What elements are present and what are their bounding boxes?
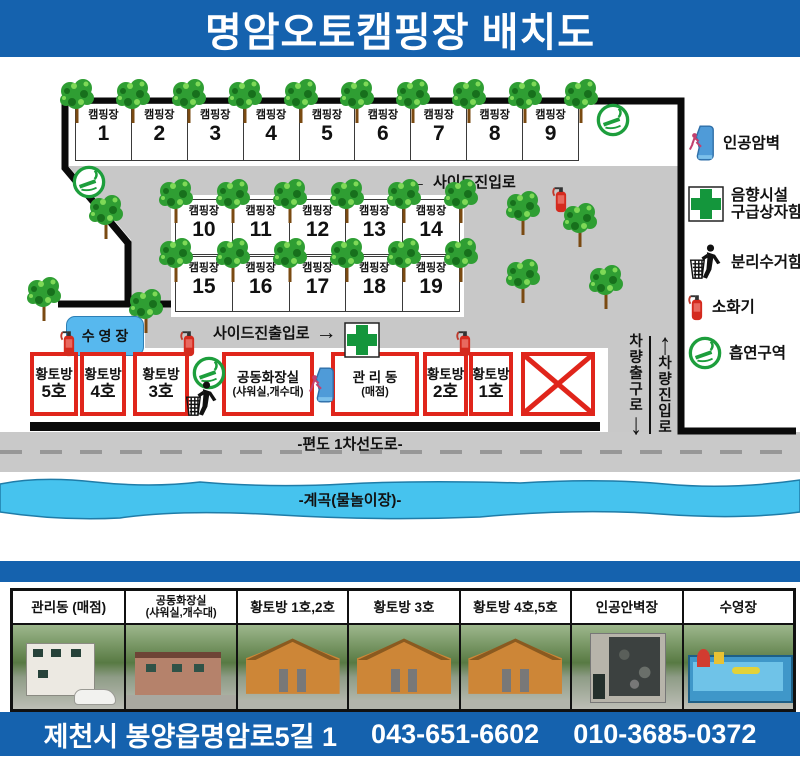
right-arrow-icon: → (316, 325, 337, 340)
camp-site-3: 캠핑장3 (187, 103, 244, 161)
photo-header: 인공안벽장 (572, 591, 681, 625)
camp-site-6: 캠핑장6 (354, 103, 411, 161)
main-road-label: -편도 1차선도로- (245, 433, 455, 454)
camp-site-13: 캠핑장13 (345, 199, 403, 255)
page-title: 명암오토캠핑장 배치도 (205, 0, 595, 58)
first-aid-icon (688, 186, 724, 222)
photo-header: 황토방 1호,2호 (238, 591, 347, 625)
fire-extinguisher-icon (60, 328, 77, 363)
crossed-out-lot (521, 352, 595, 416)
camp-row-1-9: 캠핑장1캠핑장2캠핑장3캠핑장4캠핑장5캠핑장6캠핑장7캠핑장8캠핑장9 (75, 103, 579, 161)
photo-header: 황토방 3호 (349, 591, 458, 625)
camp-site-15: 캠핑장15 (175, 256, 233, 312)
first-aid-icon (344, 322, 380, 363)
climbing-wall-icon (308, 366, 336, 409)
camp-site-17: 캠핑장17 (289, 256, 347, 312)
address: 제천시 봉양읍명암로5길 1 (44, 715, 337, 754)
hwangto-room-photo (238, 625, 347, 709)
camp-site-9: 캠핑장9 (522, 103, 579, 161)
photo-cell-황토방1호2호: 황토방 1호,2호 (236, 591, 347, 709)
camp-site-8: 캠핑장8 (466, 103, 523, 161)
left-arrow-icon: ← (406, 174, 427, 189)
vehicle-road-divider (649, 336, 651, 434)
fire-extinguisher-icon (552, 184, 569, 219)
tree-icon (505, 190, 541, 236)
building-황토방-1호: 황토방1호 (469, 352, 513, 416)
photo-cell-황토방4호5호: 황토방 4호,5호 (459, 591, 570, 709)
camp-row-15-19: 캠핑장15캠핑장16캠핑장17캠핑장18캠핑장19 (175, 256, 460, 312)
photo-header: 공동화장실(샤워실,개수대) (126, 591, 235, 625)
camp-row-10-14: 캠핑장10캠핑장11캠핑장12캠핑장13캠핑장14 (175, 199, 460, 255)
vehicle-exit-label: 차량출구로↓ (627, 334, 645, 436)
smoking-area-icon (688, 336, 722, 370)
legend-label: 분리수거함 (731, 254, 800, 271)
photo-header: 황토방 4호,5호 (461, 591, 570, 625)
camp-site-14: 캠핑장14 (402, 199, 460, 255)
phone-2: 010-3685-0372 (573, 719, 756, 750)
campground-layout-poster: 명암오토캠핑장 배치도 캠핑장1캠핑장2캠핑장3캠핑장4캠핑장5캠핑장6캠핑장7… (0, 0, 800, 761)
legend-item-recycle: 분리수거함 (688, 243, 800, 281)
down-arrow-icon: ↓ (627, 411, 645, 439)
legend-item-first-aid: 음향시설구급상자함 (688, 186, 800, 222)
side-exit-label: 사이드진출입로 → (213, 322, 337, 343)
tree-icon (505, 258, 541, 304)
up-arrow-icon: ↑ (656, 331, 674, 359)
fire-extinguisher-icon (688, 292, 705, 322)
tree-icon (26, 276, 62, 322)
fire-extinguisher-icon (180, 328, 197, 363)
side-entry-label: ← 사이드진입로 (406, 171, 516, 192)
camp-site-4: 캠핑장4 (243, 103, 300, 161)
vehicle-entry-label: ↑차량진입로 (656, 334, 674, 436)
photo-cell-황토방3호: 황토방 3호 (347, 591, 458, 709)
camp-site-10: 캠핑장10 (175, 199, 233, 255)
recycle-icon (184, 380, 220, 423)
toilet-building-photo (126, 625, 235, 709)
camp-site-7: 캠핑장7 (410, 103, 467, 161)
climbing-wall-photo (572, 625, 681, 709)
photo-table: 관리동 (매점)공동화장실(샤워실,개수대)황토방 1호,2호황토방 3호황토방… (10, 588, 796, 712)
title-bar: 명암오토캠핑장 배치도 (0, 0, 800, 57)
photo-cell-수영장: 수영장 (682, 591, 793, 709)
legend-label: 흡연구역 (729, 345, 786, 362)
photo-cell-인공안벽장: 인공안벽장 (570, 591, 681, 709)
camp-site-5: 캠핑장5 (299, 103, 356, 161)
camp-site-2: 캠핑장2 (131, 103, 188, 161)
recycle-icon (688, 243, 724, 281)
camp-site-16: 캠핑장16 (232, 256, 290, 312)
smoking-area-icon (596, 103, 630, 142)
legend-label: 음향시설구급상자함 (731, 187, 800, 221)
legend-item-smoking-area: 흡연구역 (688, 336, 800, 370)
management-building-photo (13, 625, 124, 709)
photo-header: 수영장 (684, 591, 793, 625)
camp-site-12: 캠핑장12 (289, 199, 347, 255)
phone-1: 043-651-6602 (371, 719, 539, 750)
climbing-wall-icon (688, 124, 716, 162)
swimming-pool: 수 영 장 (66, 316, 144, 356)
hwangto-room-photo (349, 625, 458, 709)
photo-cell-공동화장실: 공동화장실(샤워실,개수대) (124, 591, 235, 709)
photo-header: 관리동 (매점) (13, 591, 124, 625)
footer-bar: 제천시 봉양읍명암로5길 1 043-651-6602 010-3685-037… (0, 712, 800, 756)
tree-icon (588, 264, 624, 310)
river-label: -계곡(물놀이장)- (245, 489, 455, 510)
blue-separator-bar (0, 561, 800, 582)
camp-site-1: 캠핑장1 (75, 103, 132, 161)
legend-item-climbing-wall: 인공암벽 (688, 124, 800, 162)
building-황토방-4호: 황토방4호 (80, 352, 126, 416)
camp-site-11: 캠핑장11 (232, 199, 290, 255)
legend-item-fire-extinguisher: 소화기 (688, 292, 800, 322)
building-공동화장실-샤워실,개수대: 공동화장실(샤워실,개수대) (222, 352, 314, 416)
photo-cell-관리동매점: 관리동 (매점) (13, 591, 124, 709)
hwangto-room-photo (461, 625, 570, 709)
fire-extinguisher-icon (456, 328, 473, 363)
smoking-area-icon (72, 165, 106, 204)
camp-site-18: 캠핑장18 (345, 256, 403, 312)
legend-label: 소화기 (712, 299, 755, 316)
legend-label: 인공암벽 (723, 135, 780, 152)
pool-photo (684, 625, 793, 709)
camp-site-19: 캠핑장19 (402, 256, 460, 312)
